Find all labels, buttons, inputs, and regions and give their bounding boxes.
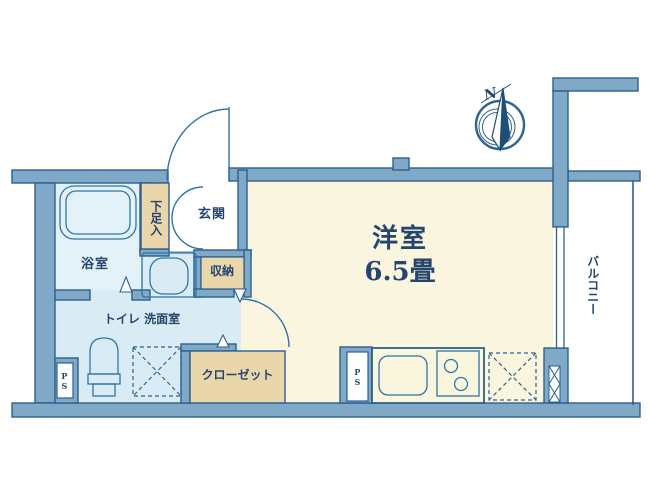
storage-label: 収納 [196,265,248,279]
toilet-washroom-label: トイレ 洗面室 [72,313,212,327]
shoe-cabinet-label: 下足入 [148,189,162,247]
wall-storage-top [194,250,251,257]
wall-storage-bottom [194,289,234,297]
pipe-space-kitchen-label: PS [353,362,361,392]
western-room-label: 洋室 [330,225,470,255]
duct-shaft-box [549,366,560,402]
wall-bathroom-bottom-right [132,290,150,300]
wall-closet-left [181,351,190,403]
closet-label: クローゼット [190,369,285,383]
wall-balcony-thin [568,171,640,181]
entry-door-swing [167,109,229,180]
floor-plan: N 浴室 下足入 玄関 収納 トイレ 洗面室 クローゼット 洋室 6.5畳 バル… [0,0,650,500]
bathroom-floor [55,183,141,290]
pipe-space-left-label: PS [60,368,68,394]
wall-bathroom-bottom-left [55,290,90,300]
balcony-floor [568,91,633,403]
balcony-window-opening [553,227,568,348]
entrance-label: 玄関 [184,208,240,223]
wall-top-left [12,170,168,183]
compass: N [476,84,524,150]
wall-top-bump [393,158,409,170]
duct-shaft [549,366,560,402]
wall-bottom [12,403,640,417]
wall-balcony-divider-upper [553,91,568,227]
western-room-size: 6.5畳 [330,258,470,288]
bathroom-label: 浴室 [60,258,130,273]
balcony-window [553,227,568,348]
wall-balcony-top [553,78,638,91]
floor-plan-drawing: N [0,0,650,500]
wall-left [35,183,55,403]
balcony-label: バルコニー [585,230,599,340]
